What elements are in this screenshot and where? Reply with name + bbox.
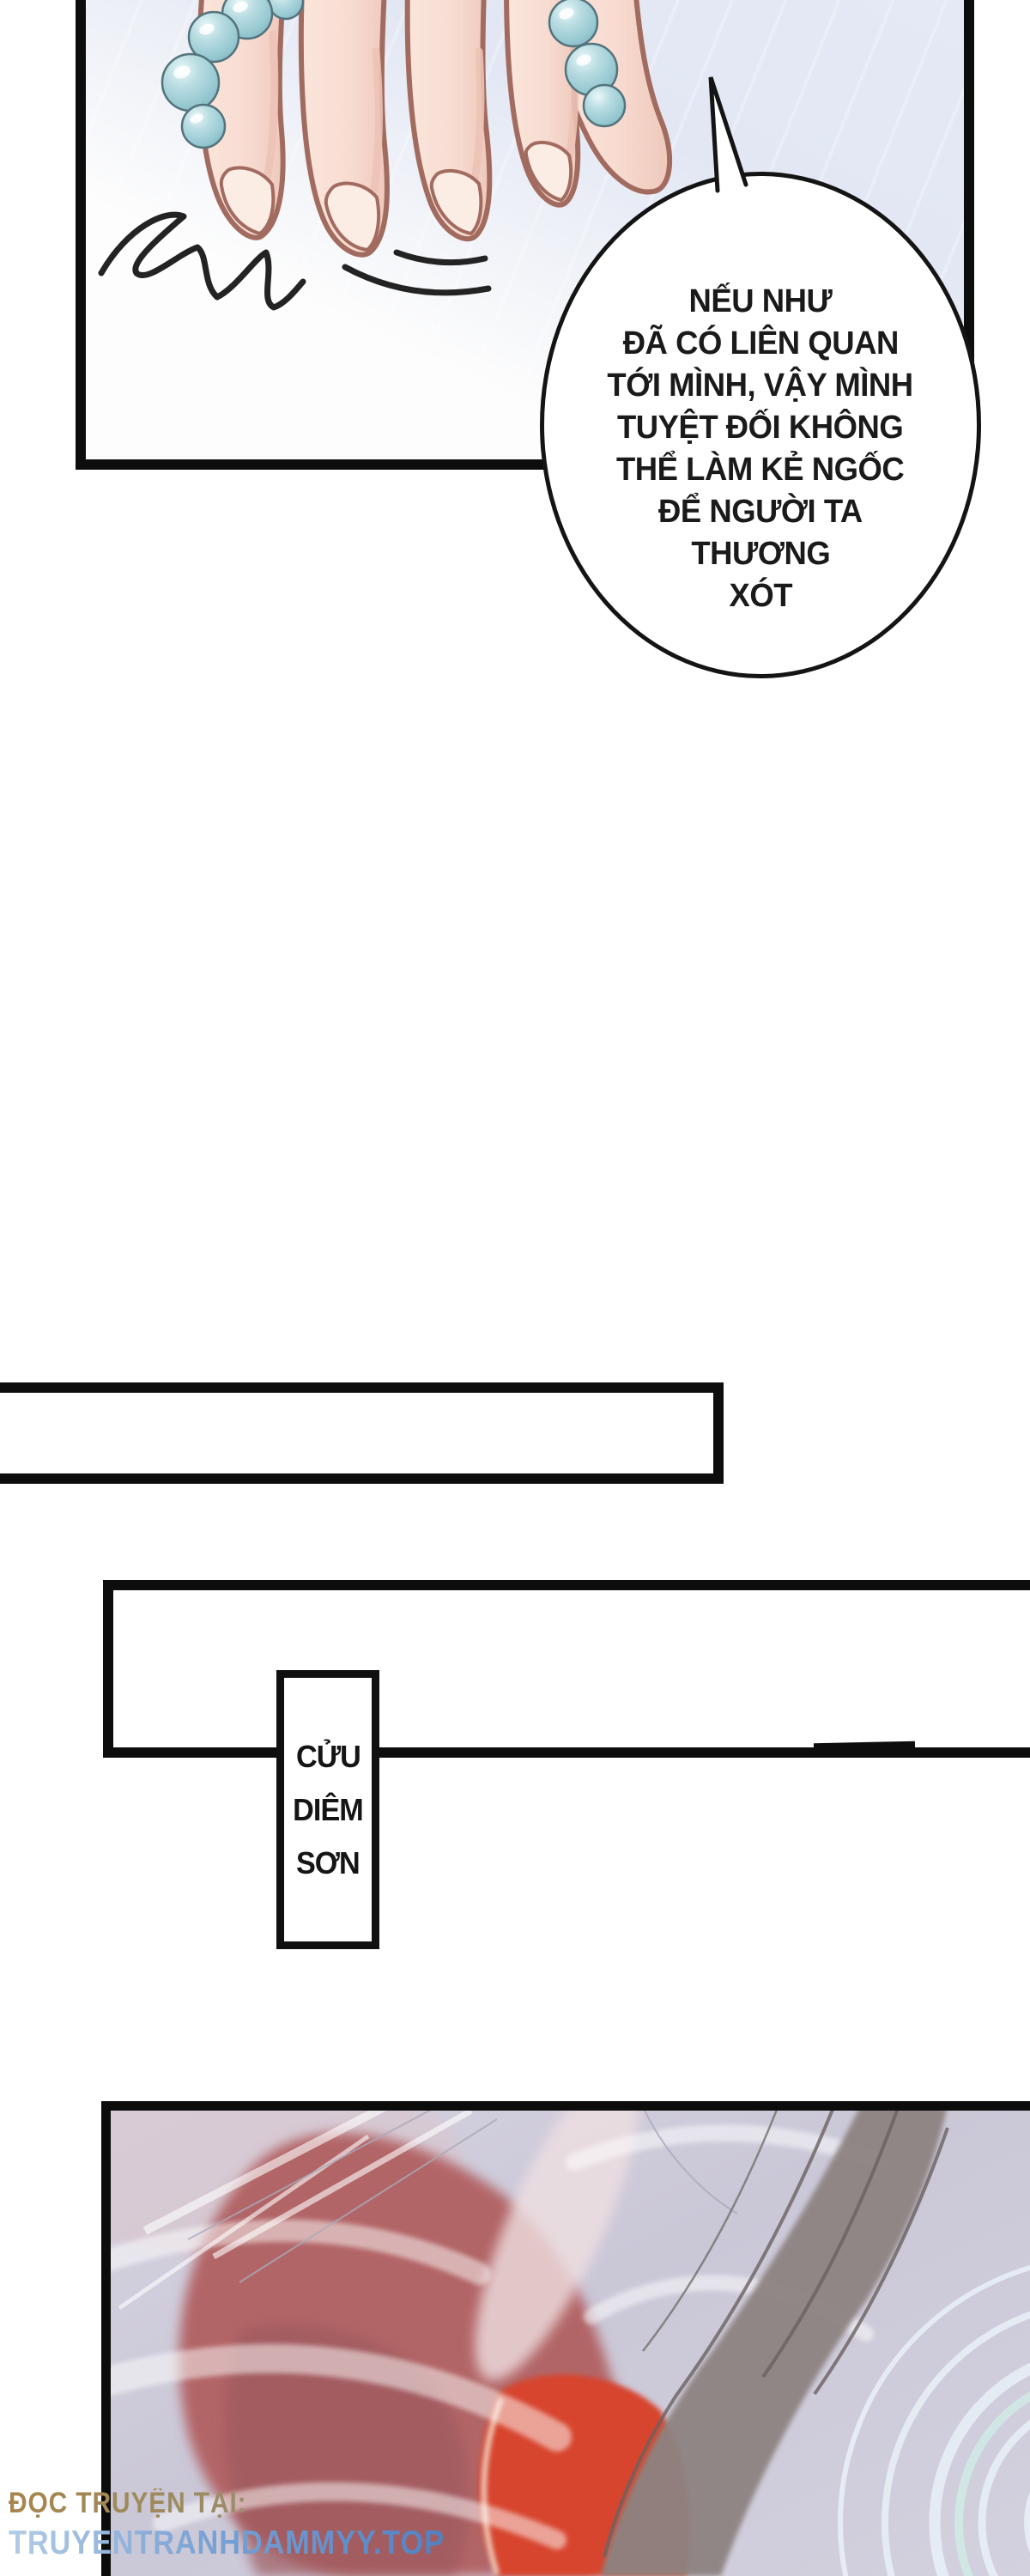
speech-line: XÓT <box>729 575 792 617</box>
speech-line: NẾU NHƯ <box>689 281 833 323</box>
speech-line: ĐỂ NGƯỜI TA <box>658 491 863 533</box>
speech-line: TỚI MÌNH, VẬY MÌNH <box>608 365 913 407</box>
watermark: ĐỌC TRUYỆN TẠI: TRUYENTRANHDAMMYY.TOP <box>9 2488 504 2560</box>
speech-line: TUYỆT ĐỐI KHÔNG <box>617 407 903 449</box>
location-label-line: DIÊM <box>293 1783 363 1837</box>
spacer-panel-1 <box>0 1382 724 1484</box>
speech-bubble-tail <box>687 60 790 206</box>
speech-bubble: NẾU NHƯ ĐÃ CÓ LIÊN QUAN TỚI MÌNH, VẬY MÌ… <box>540 172 981 678</box>
location-label-box: CỬU DIÊM SƠN <box>276 1670 379 1949</box>
location-label-line: SƠN <box>296 1837 360 1890</box>
speech-line: ĐÃ CÓ LIÊN QUAN <box>622 323 898 365</box>
watermark-line-1: ĐỌC TRUYỆN TẠI: <box>9 2488 445 2518</box>
spacer-panel-2 <box>103 1580 1030 1758</box>
motion-lines-icon <box>101 215 488 307</box>
watermark-line-2: TRUYENTRANHDAMMYY.TOP <box>9 2526 445 2560</box>
speech-line: THƯƠNG <box>691 533 830 575</box>
speech-line: THỂ LÀM KẺ NGỐC <box>616 449 904 491</box>
location-label-line: CỬU <box>296 1730 360 1783</box>
comic-page: NẾU NHƯ ĐÃ CÓ LIÊN QUAN TỚI MÌNH, VẬY MÌ… <box>0 0 1030 2576</box>
